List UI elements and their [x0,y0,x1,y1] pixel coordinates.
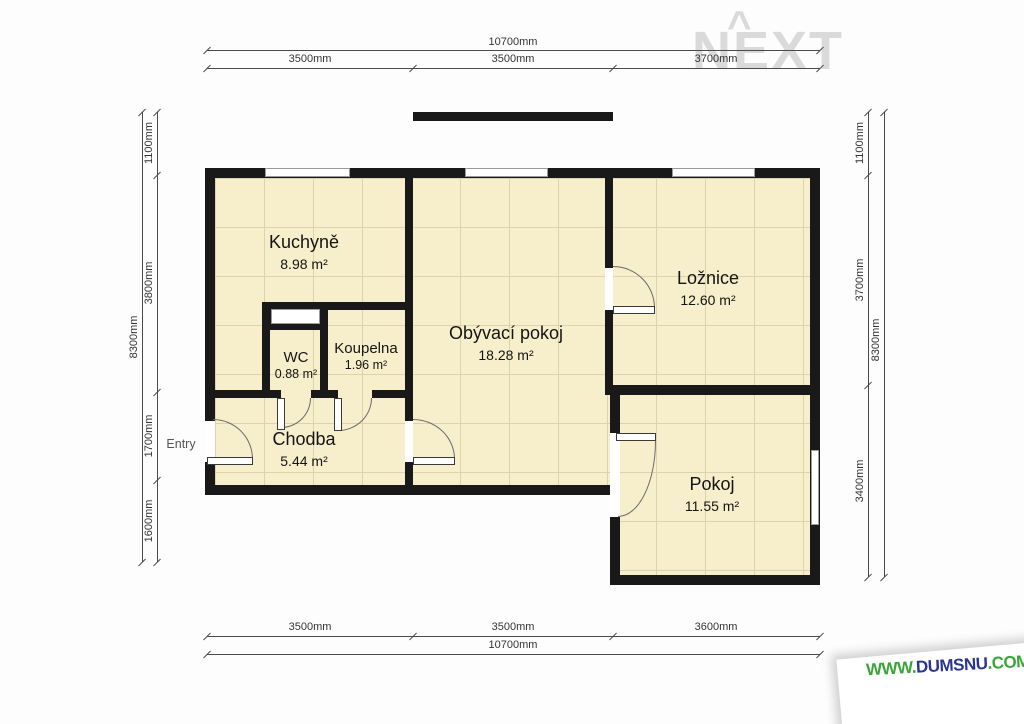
wall-chodba-top-a [205,390,281,398]
dim-top-seg-1: 3500mm [289,53,332,65]
site-logo-www: WWW. [866,658,917,680]
dim-right-seg-line [868,112,869,577]
site-logo-com: .COM [987,652,1024,673]
koupelna-door-leaf [334,398,342,431]
room-name-kuchyne: Kuchyně [269,232,339,253]
loznice-door-leaf [613,306,655,314]
window-kuchyne [265,168,350,177]
dim-left-seg-1: 1100mm [143,122,155,164]
dim-top-seg-2: 3500mm [492,53,535,65]
dim-top-total-line [207,50,820,51]
wall-living-loznice-divider-lower [605,310,613,385]
room-label-chodba: Chodba 5.44 m² [272,429,335,469]
wall-chodba-top-b [311,390,338,398]
site-logo-card [836,637,1024,724]
wall-loznice-pokoj-divider [605,385,820,395]
room-area-loznice: 12.60 m² [677,292,739,308]
wall-wc-left [262,330,270,398]
dim-right-seg-1: 1100mm [854,122,866,164]
room-label-obyvaci-pokoj: Obývací pokoj 18.28 m² [449,323,563,363]
room-name-pokoj: Pokoj [685,474,739,495]
balcony-line [413,112,613,121]
site-logo-name: DUMSNU [915,654,988,677]
wc-vent-window [271,309,320,324]
dim-left-seg-4: 1600mm [143,500,155,543]
room-label-kuchyne: Kuchyně 8.98 m² [269,232,339,272]
dim-right-seg-3: 3400mm [854,460,866,503]
next-watermark: NEXT [692,20,844,82]
dim-right-seg-2: 3700mm [854,259,866,302]
wall-koupelna-top [328,302,413,310]
room-label-loznice: Ložnice 12.60 m² [677,268,739,308]
wc-door-leaf [277,398,285,430]
wall-pokoj-bottom [610,575,820,585]
wall-chodba-top-c [372,390,413,398]
room-area-chodba: 5.44 m² [272,453,335,469]
dim-bottom-seg-line [207,636,820,637]
dim-top-seg-3: 3700mm [695,53,738,65]
room-name-koupelna: Koupelna [334,340,397,357]
room-area-pokoj: 11.55 m² [685,498,739,514]
dim-bottom-total-line [207,654,820,655]
room-name-obyvaci-pokoj: Obývací pokoj [449,323,563,344]
next-watermark-caret: ^ [727,2,752,50]
dim-bottom-seg-3: 3600mm [695,621,738,633]
pokoj-door-leaf [616,433,656,441]
dim-left-seg-2: 3800mm [143,262,155,305]
loznice-door-opening [605,268,613,310]
dim-left-total-line [142,112,143,562]
window-pokoj [811,450,819,525]
room-area-obyvaci-pokoj: 18.28 m² [449,347,563,363]
wall-living-loznice-divider-upper [605,178,613,268]
dim-top-total: 10700mm [489,36,538,48]
living-door-leaf [413,457,455,465]
dim-left-total: 8300mm [128,316,140,359]
wall-kitchen-living-divider-upper [405,178,413,421]
room-area-kuchyne: 8.98 m² [269,256,339,272]
room-label-koupelna: Koupelna 1.96 m² [334,340,397,372]
dim-top-seg-line [207,68,820,69]
wall-pokoj-left-lower [610,517,620,585]
room-name-wc: WC [275,349,317,366]
dim-right-total: 8300mm [870,319,882,362]
room-label-pokoj: Pokoj 11.55 m² [685,474,739,514]
living-door-opening [405,421,413,462]
room-label-wc: WC 0.88 m² [275,349,317,381]
room-area-wc: 0.88 m² [275,367,317,381]
dim-bottom-seg-1: 3500mm [289,621,332,633]
dim-bottom-seg-2: 3500mm [492,621,535,633]
floorplan-image: NEXT ^ Kuchyně [0,0,1024,724]
wall-wc-koupelna-divider [320,330,328,398]
wall-pokoj-left-upper [610,395,620,433]
wall-kitchen-living-divider-lower [405,462,413,495]
room-name-loznice: Ložnice [677,268,739,289]
dim-left-seg-line [157,112,158,562]
window-loznice [672,168,755,177]
room-area-koupelna: 1.96 m² [334,358,397,372]
dim-left-seg-3: 1700mm [143,415,155,458]
dim-bottom-total: 10700mm [489,639,538,651]
entry-door-leaf [207,457,253,465]
room-name-chodba: Chodba [272,429,335,450]
entry-label: Entry [166,437,195,451]
window-obyvaci-pokoj [465,168,548,177]
dim-right-total-line [884,112,885,577]
